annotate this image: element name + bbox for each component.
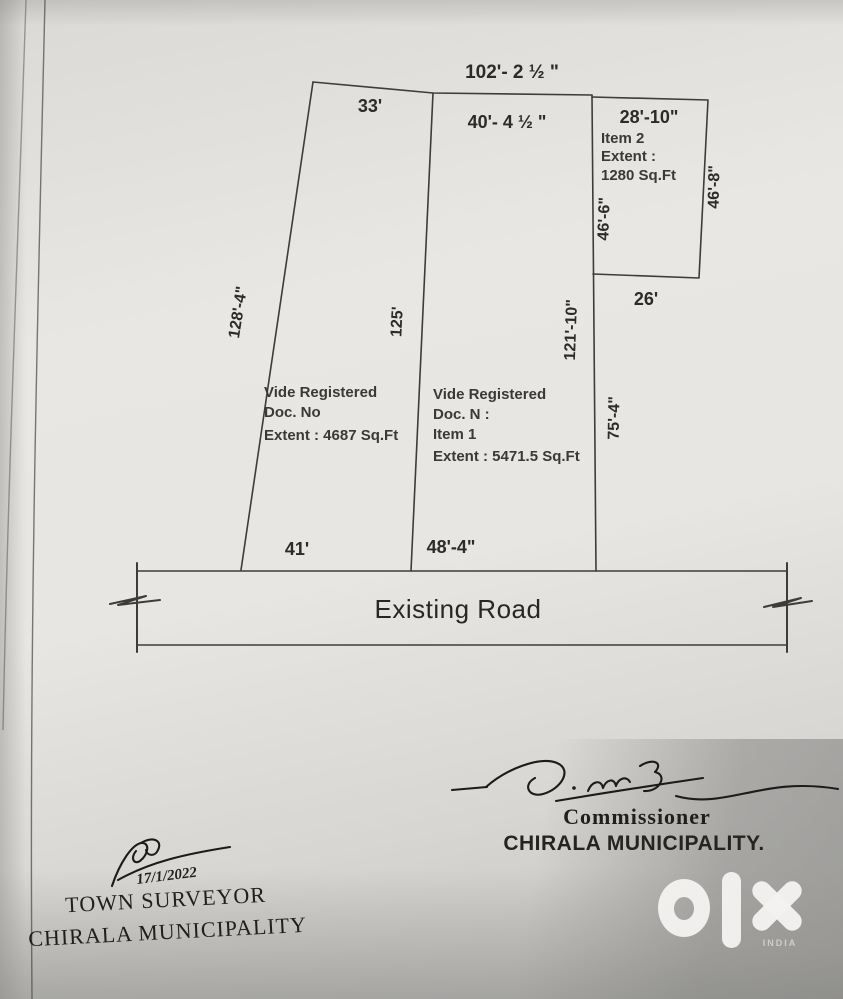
item2-right-dimension: 46'-8" xyxy=(706,165,724,209)
middle-stamp-line4: Extent : 5471.5 Sq.Ft xyxy=(433,448,580,465)
middle-plot-bottom-dimension: 48'-4" xyxy=(427,537,476,557)
road-break-symbol-left xyxy=(110,596,160,605)
surveyor-title: TOWN SURVEYOR xyxy=(65,882,267,917)
commissioner-signature-stroke xyxy=(452,787,487,790)
commissioner-signature-loop xyxy=(486,761,564,795)
item2-top-dimension: 28'-10" xyxy=(620,107,679,127)
left-plot-bottom-dimension: 41' xyxy=(285,539,309,559)
middle-stamp-line3: Item 1 xyxy=(433,426,476,443)
left-plot-stamp: Vide Registered Doc. No Extent : 4687 Sq… xyxy=(264,384,398,444)
olx-country-label: INDIA xyxy=(763,938,798,948)
top-total-dimension: 102'- 2 ½ " xyxy=(465,62,559,83)
commissioner-org: CHIRALA MUNICIPALITY. xyxy=(503,832,764,855)
item2-label-line2: Extent : xyxy=(601,148,656,165)
divider2-dimension: 121'-10" xyxy=(562,299,581,361)
plot-top-edge xyxy=(313,82,592,95)
plot-divider-2 xyxy=(592,95,596,571)
olx-watermark-logo: INDIA xyxy=(658,862,821,950)
paper-fold-lines xyxy=(3,0,45,999)
middle-stamp-line1: Vide Registered xyxy=(433,386,546,403)
plot-left-boundary xyxy=(241,82,313,570)
middle-stamp-line2: Doc. N : xyxy=(433,406,490,423)
item2-label-line3: 1280 Sq.Ft xyxy=(601,167,676,184)
left-boundary-dimension: 128'-4" xyxy=(226,285,251,339)
commissioner-signature-block: Commissioner CHIRALA MUNICIPALITY. xyxy=(452,761,838,855)
olx-bar-icon xyxy=(722,872,741,948)
middle-plot-top-dimension: 40'- 4 ½ " xyxy=(468,112,547,132)
commissioner-signature-tail xyxy=(676,786,838,799)
item2-label-line1: Item 2 xyxy=(601,130,644,147)
surveyor-signature-block: 17/1/2022 TOWN SURVEYOR CHIRALA MUNICIPA… xyxy=(28,839,308,951)
left-stamp-line1: Vide Registered xyxy=(264,384,377,401)
plot-divider-1 xyxy=(411,93,433,571)
olx-o-icon xyxy=(658,879,710,937)
middle-plot-stamp: Vide Registered Doc. N : Item 1 Extent :… xyxy=(433,386,580,465)
olx-x-icon xyxy=(733,862,821,950)
right-lower-dimension: 75'-4" xyxy=(606,396,624,440)
item2-bottom-dimension: 26' xyxy=(634,289,658,309)
item2-left-dimension: 46'-6" xyxy=(595,197,614,241)
survey-drawing: Existing Road 102'- 2 ½ " 33' 40'- 4 ½ "… xyxy=(0,0,843,999)
fold-line-2 xyxy=(31,0,45,999)
dimension-labels: 102'- 2 ½ " 33' 40'- 4 ½ " 28'-10" 128'-… xyxy=(226,62,723,559)
fold-line-1 xyxy=(3,0,26,730)
existing-road: Existing Road xyxy=(110,563,812,652)
left-stamp-line2: Doc. No xyxy=(264,404,321,421)
surveyor-signature-loop2 xyxy=(141,839,159,854)
commissioner-signature-dot xyxy=(572,786,576,790)
scanned-survey-document: Existing Road 102'- 2 ½ " 33' 40'- 4 ½ "… xyxy=(0,0,843,999)
divider1-dimension: 125' xyxy=(388,306,407,337)
surveyor-org: CHIRALA MUNICIPALITY xyxy=(28,912,308,952)
item2-label-block: Item 2 Extent : 1280 Sq.Ft xyxy=(601,130,676,184)
left-plot-top-dimension: 33' xyxy=(358,96,382,116)
road-label: Existing Road xyxy=(375,594,542,624)
left-stamp-line3: Extent : 4687 Sq.Ft xyxy=(264,427,398,444)
commissioner-title: Commissioner xyxy=(563,804,711,829)
